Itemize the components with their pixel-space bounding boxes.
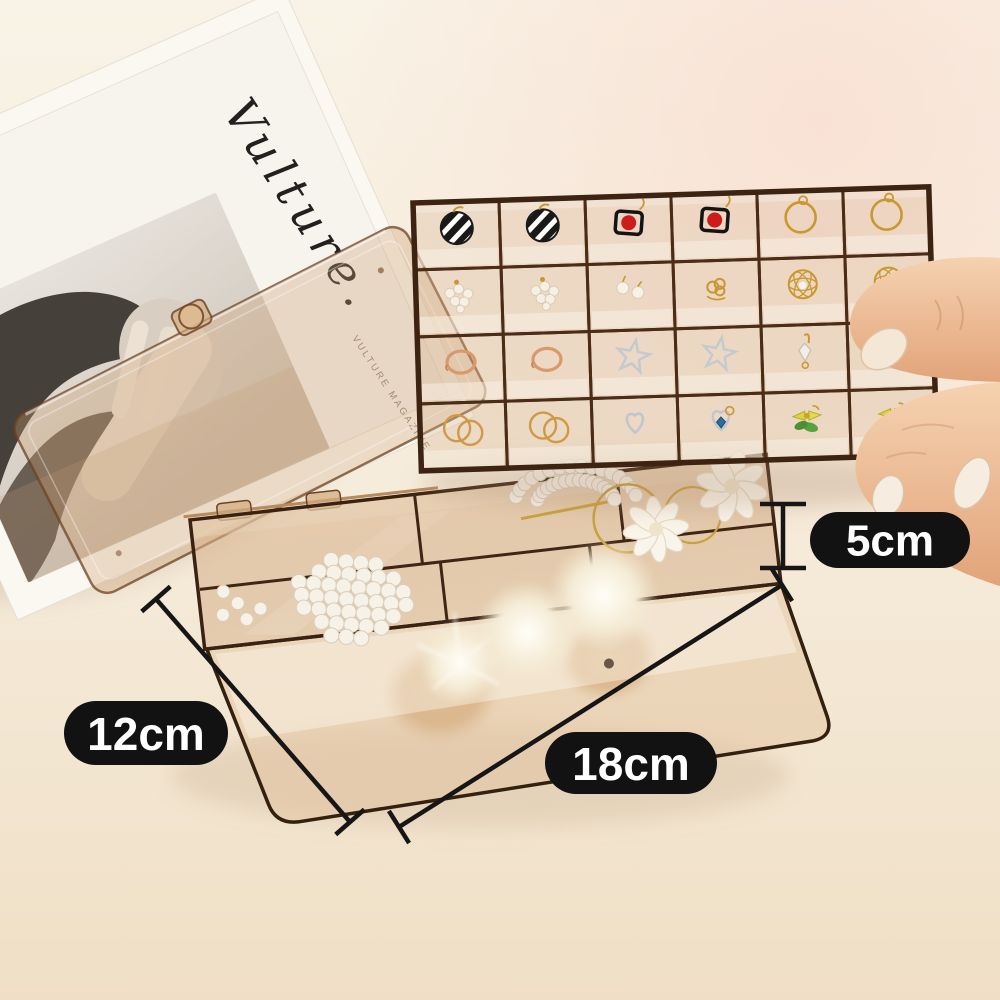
- cell-front-wall: [417, 247, 497, 267]
- cell-front-wall: [420, 314, 500, 334]
- scene: Vulture. VULTURE MAGAZINE: [0, 0, 1000, 1000]
- height-label: 5cm: [846, 517, 934, 566]
- cell-front-wall: [594, 376, 674, 396]
- cell-front-wall: [677, 306, 757, 326]
- cell-front-wall: [422, 381, 502, 401]
- cell-front-wall: [761, 237, 841, 257]
- cell-front-wall: [680, 373, 760, 393]
- product-photo: Vulture. VULTURE MAGAZINE: [0, 0, 1000, 1000]
- length-label-pill: 18cm: [545, 732, 717, 794]
- cell-front-wall: [589, 242, 669, 262]
- cell-front-wall: [506, 312, 586, 332]
- cell-front-wall: [508, 379, 588, 399]
- cell-front-wall: [766, 370, 846, 390]
- cell-front-wall: [510, 446, 590, 466]
- height-label-pill: 5cm: [810, 512, 970, 568]
- length-label: 18cm: [572, 738, 690, 790]
- cell-front-wall: [847, 234, 927, 254]
- cell-front-wall: [596, 443, 676, 463]
- cell-front-wall: [768, 437, 848, 457]
- width-label-pill: 12cm: [64, 701, 228, 765]
- cell-front-wall: [591, 309, 671, 329]
- cell-front-wall: [675, 239, 755, 259]
- cell-front-wall: [424, 448, 504, 468]
- cell-front-wall: [503, 245, 583, 265]
- cell-front-wall: [682, 440, 762, 460]
- width-label: 12cm: [87, 708, 205, 760]
- cell-front-wall: [763, 304, 843, 324]
